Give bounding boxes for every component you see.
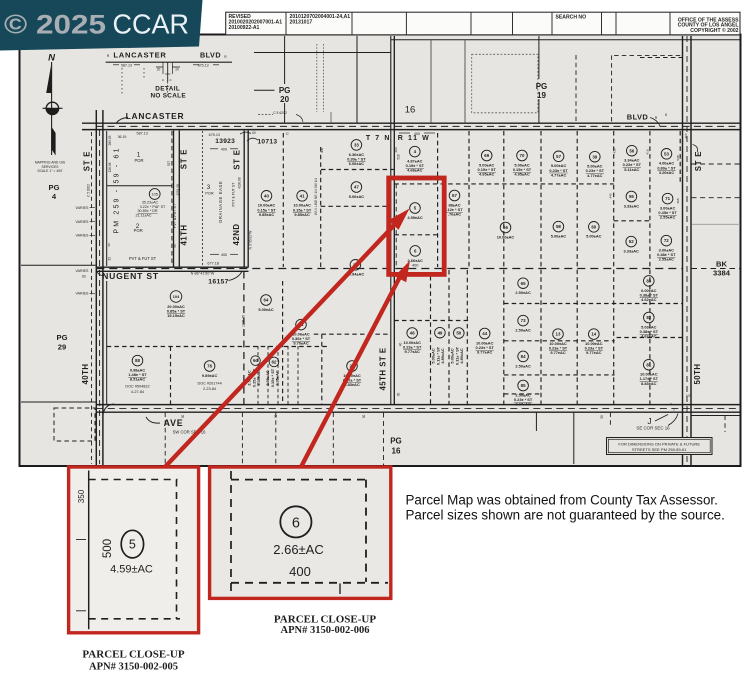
svg-text:33: 33 <box>354 142 359 147</box>
svg-text:3.20±AC: 3.20±AC <box>659 170 675 175</box>
svg-text:LANCASTER: LANCASTER <box>126 111 185 121</box>
svg-text:APN# 3150-002-005: APN# 3150-002-005 <box>89 662 178 673</box>
svg-text:66: 66 <box>503 225 508 230</box>
svg-text:440: 440 <box>608 193 612 198</box>
svg-text:9.89±AC: 9.89±AC <box>202 373 218 378</box>
svg-text:10713: 10713 <box>257 139 277 146</box>
svg-text:9.85±AC: 9.85±AC <box>259 212 275 217</box>
svg-text:32: 32 <box>108 257 112 261</box>
svg-text:PM 259 - 59 - 61: PM 259 - 59 - 61 <box>113 146 120 233</box>
svg-text:57: 57 <box>556 154 561 159</box>
svg-text:PARCEL CLOSE-UP: PARCEL CLOSE-UP <box>82 649 184 661</box>
svg-text:PG: PG <box>57 333 68 342</box>
svg-text:41: 41 <box>300 193 305 198</box>
svg-text:BK: BK <box>716 260 727 269</box>
svg-text:105: 105 <box>151 192 158 197</box>
svg-text:58: 58 <box>556 224 561 229</box>
svg-text:44: 44 <box>482 331 487 336</box>
svg-text:4.62±AC: 4.62±AC <box>641 297 657 302</box>
svg-text:510: 510 <box>397 154 401 160</box>
svg-text:2.50±AC: 2.50±AC <box>515 328 531 333</box>
svg-text:ST E: ST E <box>83 151 92 172</box>
svg-text:13: 13 <box>556 332 561 337</box>
svg-text:39: 39 <box>592 154 597 159</box>
svg-text:41TH: 41TH <box>180 224 189 245</box>
svg-text:5.00±AC: 5.00±AC <box>258 307 274 312</box>
svg-text:4.95±AC: 4.95±AC <box>479 172 495 177</box>
svg-text:81: 81 <box>646 362 651 367</box>
svg-text:PVT & FUT ST: PVT & FUT ST <box>173 203 177 228</box>
svg-text:40: 40 <box>398 343 402 347</box>
svg-text:.76±AC: .76±AC <box>448 212 461 217</box>
svg-text:PVT & FUT ST: PVT & FUT ST <box>129 256 157 261</box>
svg-text:60: 60 <box>173 244 177 248</box>
svg-text:CCAR: CCAR <box>113 8 190 39</box>
svg-text:45TH ST E: 45TH ST E <box>379 347 388 390</box>
svg-text:COPYRIGHT © 2002: COPYRIGHT © 2002 <box>690 27 738 34</box>
svg-text:10.00±AC: 10.00±AC <box>497 234 515 239</box>
svg-text:4.95±AC: 4.95±AC <box>514 172 530 177</box>
svg-text:4.62±AC: 4.62±AC <box>641 334 657 339</box>
svg-text:4.77±AC: 4.77±AC <box>587 173 603 178</box>
svg-text:19: 19 <box>537 91 546 100</box>
svg-text:83: 83 <box>646 278 651 283</box>
svg-text:36.19: 36.19 <box>118 135 127 139</box>
svg-text:30: 30 <box>274 415 278 419</box>
svg-text:4.59±AC: 4.59±AC <box>407 215 423 220</box>
svg-text:POR: POR <box>134 228 143 233</box>
svg-text:4.68±AC: 4.68±AC <box>407 168 423 173</box>
svg-text:C 5 6202: C 5 6202 <box>273 111 287 115</box>
svg-text:5.00±AC: 5.00±AC <box>551 234 567 239</box>
svg-text:40: 40 <box>264 193 269 198</box>
svg-text:5.06±AC: 5.06±AC <box>349 194 365 199</box>
svg-text:8.83±AC: 8.83±AC <box>641 381 657 386</box>
svg-text:T 7 N: T 7 N <box>366 135 391 142</box>
svg-text:16: 16 <box>405 105 416 116</box>
svg-text:ST E: ST E <box>233 149 242 170</box>
svg-text:4-27-84: 4-27-84 <box>131 390 144 394</box>
svg-text:FOR DIMENSIONS ON PRIVATE & FU: FOR DIMENSIONS ON PRIVATE & FUTURE <box>618 441 700 446</box>
svg-text:Parcel sizes shown are not gua: Parcel sizes shown are not guaranteed by… <box>406 507 725 522</box>
svg-text:12: 12 <box>285 132 289 136</box>
svg-text:104: 104 <box>173 294 180 299</box>
svg-text:56: 56 <box>629 148 634 153</box>
svg-text:350: 350 <box>77 489 86 503</box>
svg-text:9.77±AC: 9.77±AC <box>550 350 566 355</box>
svg-text:PG: PG <box>390 437 402 446</box>
svg-text:400: 400 <box>221 253 227 257</box>
svg-text:52: 52 <box>629 239 634 244</box>
svg-text:100: 100 <box>686 394 691 398</box>
svg-text:VARIES: VARIES <box>76 269 90 273</box>
svg-text:20131017: 20131017 <box>290 20 313 26</box>
svg-text:© 2025: © 2025 <box>4 9 106 39</box>
svg-text:Parcel Map was obtained from C: Parcel Map was obtained from County Tax … <box>406 492 718 507</box>
svg-text:PG: PG <box>49 183 60 192</box>
svg-text:NUGENT ST: NUGENT ST <box>102 271 159 281</box>
svg-text:400: 400 <box>289 564 311 579</box>
svg-text:2.55±AC: 2.55±AC <box>659 257 675 262</box>
svg-text:5.00±AC: 5.00±AC <box>586 234 602 239</box>
svg-text:2-23-84: 2-23-84 <box>203 387 216 391</box>
svg-text:70: 70 <box>520 153 525 158</box>
svg-text:NO SCALE: NO SCALE <box>150 92 186 99</box>
svg-text:2: 2 <box>673 408 675 412</box>
svg-text:ST E: ST E <box>180 149 189 170</box>
svg-text:3.33±AC: 3.33±AC <box>624 249 640 254</box>
svg-text:AVE: AVE <box>164 418 184 428</box>
svg-text:DRAINAGE EASE: DRAINAGE EASE <box>218 181 223 223</box>
svg-text:16157: 16157 <box>208 278 228 285</box>
svg-text:269.03: 269.03 <box>108 135 112 145</box>
svg-text:368: 368 <box>676 198 680 203</box>
svg-text:5.11±AC: 5.11±AC <box>624 167 639 172</box>
svg-text:64: 64 <box>264 298 269 303</box>
svg-text:677.18: 677.18 <box>207 261 219 265</box>
svg-text:126.98: 126.98 <box>108 162 112 172</box>
svg-text:2.50±AC: 2.50±AC <box>515 290 531 295</box>
svg-text:W'LY LINE NE 1/4 SW 1/4: W'LY LINE NE 1/4 SW 1/4 <box>314 178 318 215</box>
svg-text:LANCASTER: LANCASTER <box>113 51 166 60</box>
svg-text:14: 14 <box>591 332 596 337</box>
svg-text:30: 30 <box>600 415 604 419</box>
svg-text:62: 62 <box>82 275 86 279</box>
svg-text:9.77±AC: 9.77±AC <box>405 349 421 354</box>
svg-text:20: 20 <box>157 68 161 72</box>
svg-text:5: 5 <box>129 538 136 552</box>
svg-text:N 0°05'02"W: N 0°05'02"W <box>249 230 253 250</box>
svg-text:88: 88 <box>135 358 140 363</box>
svg-text:R 11 W: R 11 W <box>398 135 431 142</box>
svg-text:PARCEL CLOSE-UP: PARCEL CLOSE-UP <box>274 614 376 626</box>
svg-text:3384: 3384 <box>713 269 731 278</box>
svg-text:29: 29 <box>58 343 66 352</box>
svg-text:DOC #504822: DOC #504822 <box>125 384 149 388</box>
svg-text:DOC #201744: DOC #201744 <box>197 382 221 386</box>
svg-text:47: 47 <box>354 185 359 190</box>
svg-text:C 5 6202: C 5 6202 <box>87 184 91 197</box>
svg-text:84: 84 <box>521 354 526 359</box>
svg-text:400: 400 <box>684 133 688 138</box>
svg-text:4.89±AC: 4.89±AC <box>459 348 464 364</box>
svg-text:46: 46 <box>410 331 415 336</box>
svg-text:42ND: 42ND <box>232 224 241 246</box>
svg-text:VARIES: VARIES <box>76 220 90 224</box>
svg-text:VARIES: VARIES <box>76 234 90 238</box>
svg-text:60: 60 <box>252 131 256 135</box>
svg-text:72: 72 <box>664 238 669 243</box>
svg-text:BLVD: BLVD <box>627 113 649 122</box>
svg-text:9.77±AC: 9.77±AC <box>477 350 493 355</box>
svg-text:4.59±AC: 4.59±AC <box>110 564 153 576</box>
svg-text:APN# 3150-002-006: APN# 3150-002-006 <box>281 625 370 636</box>
svg-text:82: 82 <box>646 315 651 320</box>
svg-text:SCALE 1" = 400': SCALE 1" = 400' <box>37 169 63 173</box>
svg-text:3: 3 <box>207 184 211 191</box>
svg-text:76: 76 <box>207 364 212 369</box>
svg-text:55: 55 <box>629 194 634 199</box>
svg-text:9.77±AC: 9.77±AC <box>586 350 602 355</box>
svg-text:DETAIL: DETAIL <box>155 85 180 92</box>
svg-text:400: 400 <box>394 147 398 153</box>
svg-text:N: N <box>48 53 56 64</box>
svg-text:2.50±AC: 2.50±AC <box>515 363 531 368</box>
svg-text:4.77±AC: 4.77±AC <box>551 172 567 177</box>
svg-text:2.55±AC: 2.55±AC <box>660 215 676 220</box>
svg-text:6: 6 <box>292 515 300 531</box>
svg-text:PG: PG <box>279 86 291 95</box>
svg-text:19.15±AC: 19.15±AC <box>167 313 185 318</box>
svg-text:9.85±AC: 9.85±AC <box>294 212 310 217</box>
svg-text:400: 400 <box>221 148 227 152</box>
svg-text:30: 30 <box>397 393 401 397</box>
svg-text:3.33±AC: 3.33±AC <box>624 203 640 208</box>
svg-text:PG: PG <box>536 82 548 91</box>
svg-text:4290.66: 4290.66 <box>238 177 242 189</box>
svg-text:6.06±AC: 6.06±AC <box>349 161 365 166</box>
svg-text:16: 16 <box>392 447 401 456</box>
svg-text:60: 60 <box>591 224 596 229</box>
svg-text:N 86°41'50"W: N 86°41'50"W <box>191 272 215 276</box>
svg-text:9.70±AC: 9.70±AC <box>293 341 309 346</box>
svg-text:69: 69 <box>484 153 489 158</box>
svg-text:400: 400 <box>412 262 419 267</box>
svg-text:30: 30 <box>362 415 366 419</box>
svg-text:VARIES: VARIES <box>76 206 90 210</box>
svg-text:50TH: 50TH <box>693 363 702 384</box>
svg-text:2.66±AC: 2.66±AC <box>273 542 324 557</box>
svg-text:BLVD: BLVD <box>200 50 221 59</box>
svg-text:410: 410 <box>613 148 617 153</box>
svg-text:VARIES: VARIES <box>76 292 90 296</box>
svg-text:73: 73 <box>521 318 526 323</box>
svg-text:67: 67 <box>452 193 457 198</box>
svg-text:SE COR SEC 16: SE COR SEC 16 <box>636 425 670 430</box>
svg-text:40TH: 40TH <box>81 363 90 384</box>
svg-text:65: 65 <box>521 281 526 286</box>
svg-text:675.13: 675.13 <box>209 133 220 137</box>
svg-text:20: 20 <box>280 95 289 104</box>
svg-text:60: 60 <box>107 243 111 247</box>
svg-text:STREETS SEE PM 259-59-61: STREETS SEE PM 259-59-61 <box>632 447 687 452</box>
svg-text:587.13: 587.13 <box>137 132 148 136</box>
svg-text:587.13: 587.13 <box>121 64 132 68</box>
svg-text:416: 416 <box>646 149 650 154</box>
svg-text:538: 538 <box>676 155 680 160</box>
svg-text:ST E: ST E <box>694 151 703 172</box>
svg-text:1291.98: 1291.98 <box>176 184 180 196</box>
svg-text:400: 400 <box>320 148 324 154</box>
svg-text:POR: POR <box>205 192 213 196</box>
svg-text:21.11±AC: 21.11±AC <box>135 213 151 217</box>
svg-text:2.27±AC: 2.27±AC <box>515 402 531 407</box>
svg-text:20100922-A1: 20100922-A1 <box>229 25 260 31</box>
svg-text:SEARCH NO: SEARCH NO <box>556 14 587 20</box>
svg-text:527: 527 <box>167 161 171 167</box>
svg-text:675.13: 675.13 <box>198 63 209 67</box>
svg-text:POR: POR <box>134 158 143 163</box>
svg-text:4.89±AC: 4.89±AC <box>440 348 445 364</box>
svg-text:3.22± * P&F ST: 3.22± * P&F ST <box>140 205 166 209</box>
svg-text:8.51±AC: 8.51±AC <box>130 377 146 382</box>
svg-text:35.23±AC: 35.23±AC <box>142 200 159 204</box>
svg-text:13923: 13923 <box>215 138 235 145</box>
svg-text:53: 53 <box>664 151 669 156</box>
svg-text:2.35±AC: 2.35±AC <box>275 370 280 386</box>
svg-text:1296.45: 1296.45 <box>242 315 246 327</box>
svg-text:20: 20 <box>175 68 179 72</box>
svg-text:8: 8 <box>665 113 667 117</box>
svg-text:500: 500 <box>102 539 114 558</box>
svg-text:PVT & FUT ST: PVT & FUT ST <box>231 182 235 207</box>
svg-text:85: 85 <box>521 383 526 388</box>
svg-text:71: 71 <box>665 196 670 201</box>
